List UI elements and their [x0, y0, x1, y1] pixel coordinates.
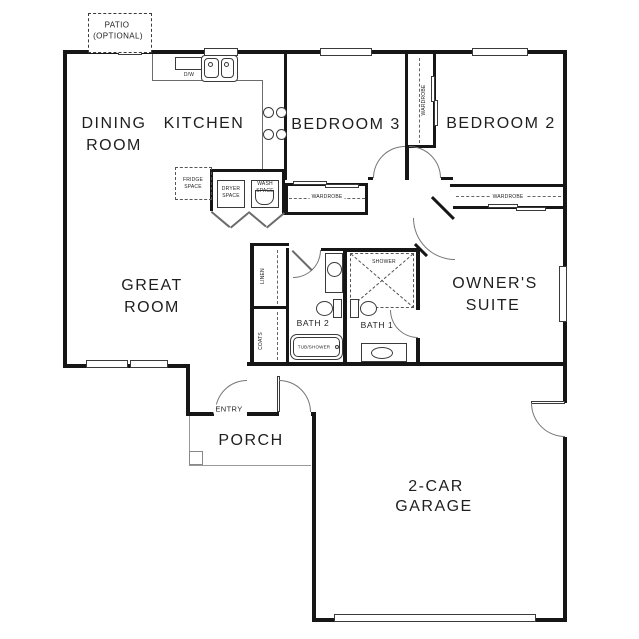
wall-right-upper	[563, 50, 567, 403]
bath1-door-arc	[390, 310, 418, 338]
great-room-label2: ROOM	[124, 299, 180, 317]
coats-label: COATS	[258, 332, 264, 350]
linen-rod	[277, 250, 278, 304]
bedroom2-window	[472, 48, 528, 56]
wall-linen-bottom	[250, 306, 289, 309]
b3-wardrobe-slider	[325, 184, 359, 188]
wall-laundry-top	[210, 169, 285, 172]
bifold-door	[230, 212, 249, 228]
sink-basin	[204, 58, 219, 78]
wall-hall-bottom-b	[247, 412, 279, 416]
owner-wardrobe-slider	[516, 207, 546, 211]
patio-optional-label: (OPTIONAL)	[93, 32, 143, 41]
dryer-space-label: DRYER	[222, 186, 240, 192]
bath1-toilet-tank	[350, 299, 359, 318]
wall-b2wardrobe-left	[405, 54, 408, 148]
wall-bath2-west	[286, 248, 289, 364]
shower-label: SHOWER	[370, 259, 398, 265]
great-room-label: GREAT	[121, 277, 182, 295]
range-burner	[276, 107, 287, 118]
wall-left	[63, 50, 67, 368]
kitchen-label: KITCHEN	[164, 115, 245, 133]
wash-space-label2: SPACE	[256, 188, 274, 194]
wall-b3wardrobe-bottom	[285, 212, 368, 215]
dining-room-label: DINING	[82, 115, 147, 133]
owners-suite-label: OWNER'S	[452, 275, 538, 293]
dryer-space-label2: SPACE	[222, 193, 240, 199]
wardrobe-rod	[419, 58, 420, 143]
bath2-label: BATH 2	[297, 318, 330, 328]
bifold-door	[211, 211, 230, 228]
b3-wardrobe-slider	[293, 181, 327, 185]
sink-faucet	[224, 62, 229, 67]
wall-south-main	[247, 362, 567, 366]
wall-bath1-east-a	[416, 252, 420, 310]
wash-space-label: WASH	[257, 181, 273, 187]
range-burner	[263, 129, 274, 140]
bedroom2-wardrobe-label: WARDROBE	[421, 83, 427, 118]
bath2-toilet-tank	[333, 299, 342, 318]
wall-bath-divider	[343, 248, 347, 362]
garage-side-door-arc	[531, 403, 565, 437]
wall-greatroom-east	[250, 243, 254, 364]
greatroom-window	[130, 360, 168, 368]
garage-entry-door-arc	[279, 380, 311, 412]
bedroom3-door-arc	[373, 146, 405, 178]
owner-wardrobe-slider	[488, 204, 518, 208]
floor-plan-canvas: PATIO (OPTIONAL) DINING ROOM KITCHEN BED…	[0, 0, 639, 639]
wall-garage-left	[312, 412, 316, 622]
garage-label: 2-CAR	[408, 478, 464, 496]
bifold-door	[266, 212, 285, 228]
porch-edge	[189, 465, 311, 466]
owners-suite-window	[559, 266, 567, 322]
porch-post	[189, 451, 203, 465]
bedroom3-label: BEDROOM 3	[291, 116, 401, 134]
wall-hall-bottom-a	[186, 412, 214, 416]
garage-label2: GARAGE	[395, 498, 472, 516]
owner-wardrobe-label: WARDROBE	[491, 194, 526, 200]
bedroom2-label: BEDROOM 2	[446, 115, 556, 133]
bath2-sink	[327, 262, 342, 277]
wall-linen-top	[250, 243, 289, 246]
range-burner	[263, 107, 274, 118]
counter-edge	[152, 54, 153, 80]
bath1-label: BATH 1	[361, 320, 394, 330]
wall-right-lower	[563, 437, 567, 622]
dishwasher	[175, 57, 203, 70]
sink-faucet	[208, 62, 213, 67]
linen-label: LINEN	[260, 268, 266, 284]
bath1-sink	[371, 347, 393, 359]
bath1-toilet-bowl	[360, 301, 377, 316]
garage-overhead-door	[334, 614, 536, 622]
wall-b3wardrobe-left	[285, 183, 288, 215]
coats-rod	[277, 312, 278, 360]
wall-bath1-east-b	[416, 338, 420, 364]
sink-basin	[221, 58, 234, 78]
wall-bath1-north	[347, 248, 420, 252]
dining-room-label2: ROOM	[86, 137, 142, 155]
bedroom2-door-arc	[409, 146, 441, 178]
fridge-space-label2: SPACE	[184, 184, 202, 190]
bedroom3-window	[320, 48, 372, 56]
porch-label: PORCH	[218, 432, 283, 450]
counter-edge	[262, 80, 263, 169]
tub-drain	[335, 345, 339, 349]
owners-suite-label2: SUITE	[466, 297, 521, 315]
wall-step	[186, 364, 190, 416]
dishwasher-label: D/W	[184, 72, 194, 78]
tub-shower-label: TUB/SHOWER	[298, 345, 331, 350]
wall-owner-wardrobe-top	[450, 184, 567, 187]
b2-wardrobe-slider	[434, 100, 438, 126]
wall-stub-bed2	[441, 177, 453, 180]
b2-wardrobe-slider	[431, 76, 435, 102]
wall-owner-diagonal	[431, 196, 455, 220]
patio-label: PATIO	[105, 21, 130, 30]
bath2-toilet-bowl	[316, 301, 333, 316]
greatroom-window	[86, 360, 128, 368]
wall-b3wardrobe-right	[365, 183, 368, 215]
fridge-space-label: FRIDGE	[183, 177, 203, 183]
entry-label: ENTRY	[213, 405, 244, 414]
bedroom3-wardrobe-label: WARDROBE	[310, 194, 345, 200]
range-burner	[276, 129, 287, 140]
bifold-door	[248, 211, 267, 227]
